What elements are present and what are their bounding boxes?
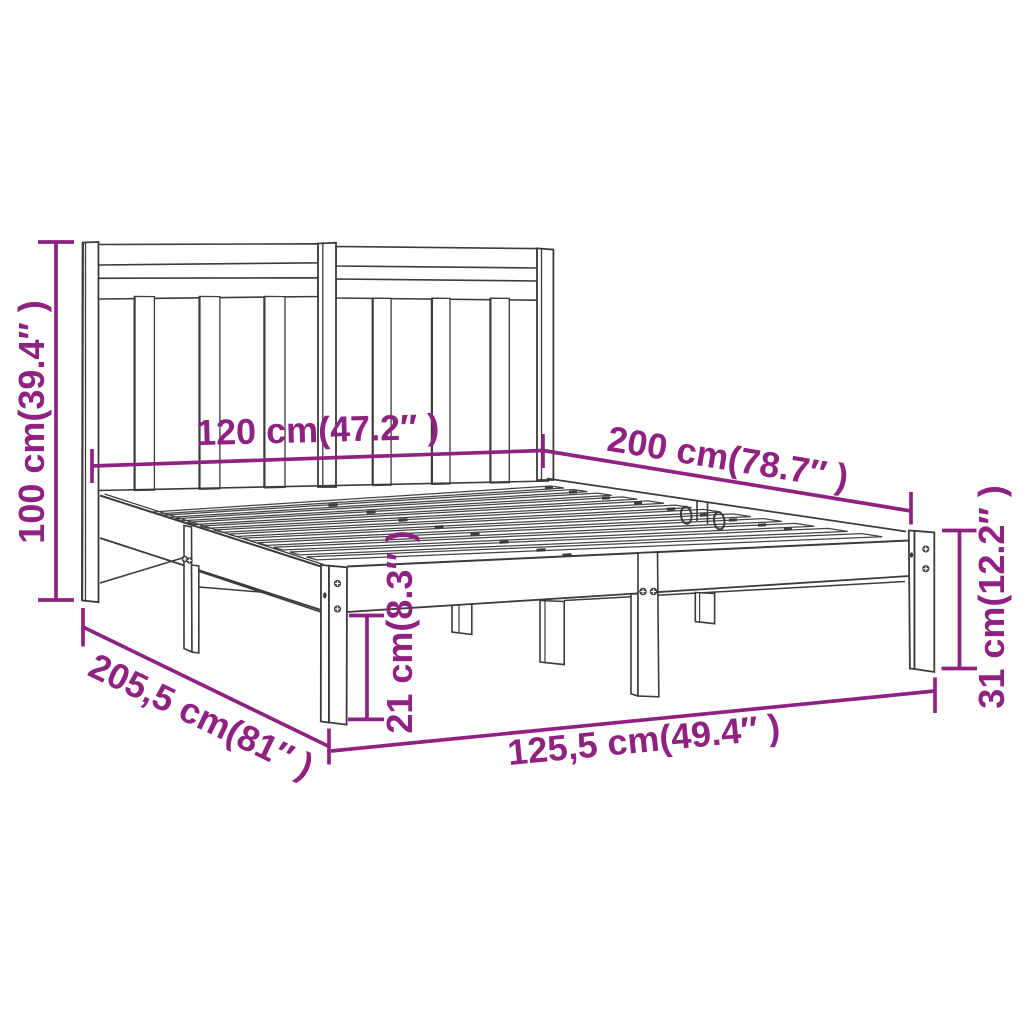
- svg-text:100 cm(39.4″ ): 100 cm(39.4″ ): [11, 300, 52, 543]
- svg-text:31 cm(12.2″ ): 31 cm(12.2″ ): [971, 485, 1012, 708]
- svg-text:120 cm(47.2″ ): 120 cm(47.2″ ): [195, 406, 439, 453]
- svg-text:21 cm(8.3″ ): 21 cm(8.3″ ): [379, 530, 420, 733]
